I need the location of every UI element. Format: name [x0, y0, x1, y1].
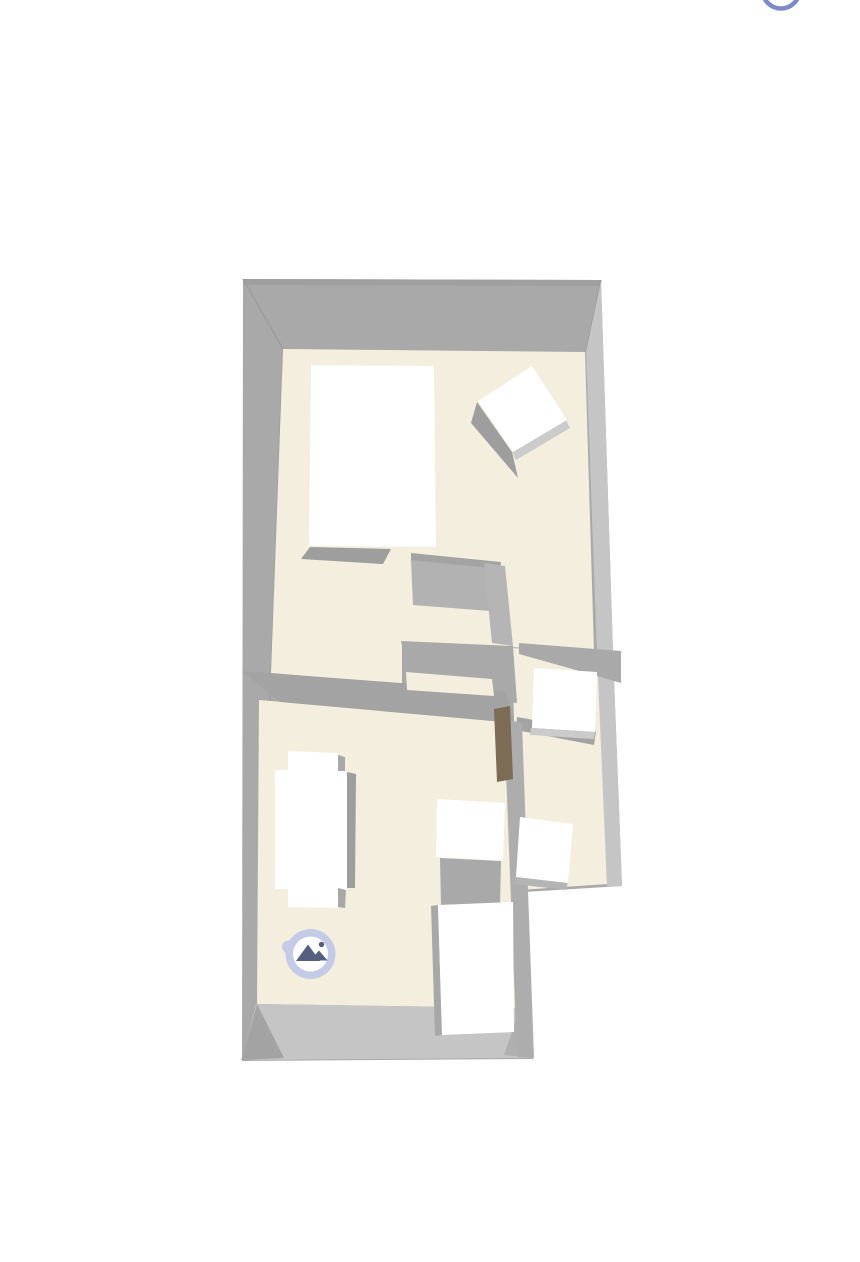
north-wall-top-edge — [243, 279, 601, 286]
bottom-bed — [438, 902, 514, 1035]
viewer-canvas — [0, 0, 860, 1262]
cabinet-1 — [436, 799, 505, 861]
wall-stub — [440, 858, 501, 907]
shower-unit — [532, 668, 597, 732]
bed — [309, 365, 436, 547]
dining-table — [275, 770, 347, 890]
chair-bottom — [288, 886, 338, 908]
chair-bottom-shadow — [337, 888, 346, 908]
door-panel — [494, 706, 513, 782]
chair-top — [288, 751, 338, 772]
table-shadow — [347, 772, 356, 888]
sun-dot — [319, 942, 324, 947]
chair-top-shadow — [338, 755, 345, 772]
floorplan-3d-view[interactable] — [0, 0, 860, 1262]
partial-circle-button[interactable] — [763, 0, 800, 9]
cabinet-2 — [516, 817, 573, 883]
